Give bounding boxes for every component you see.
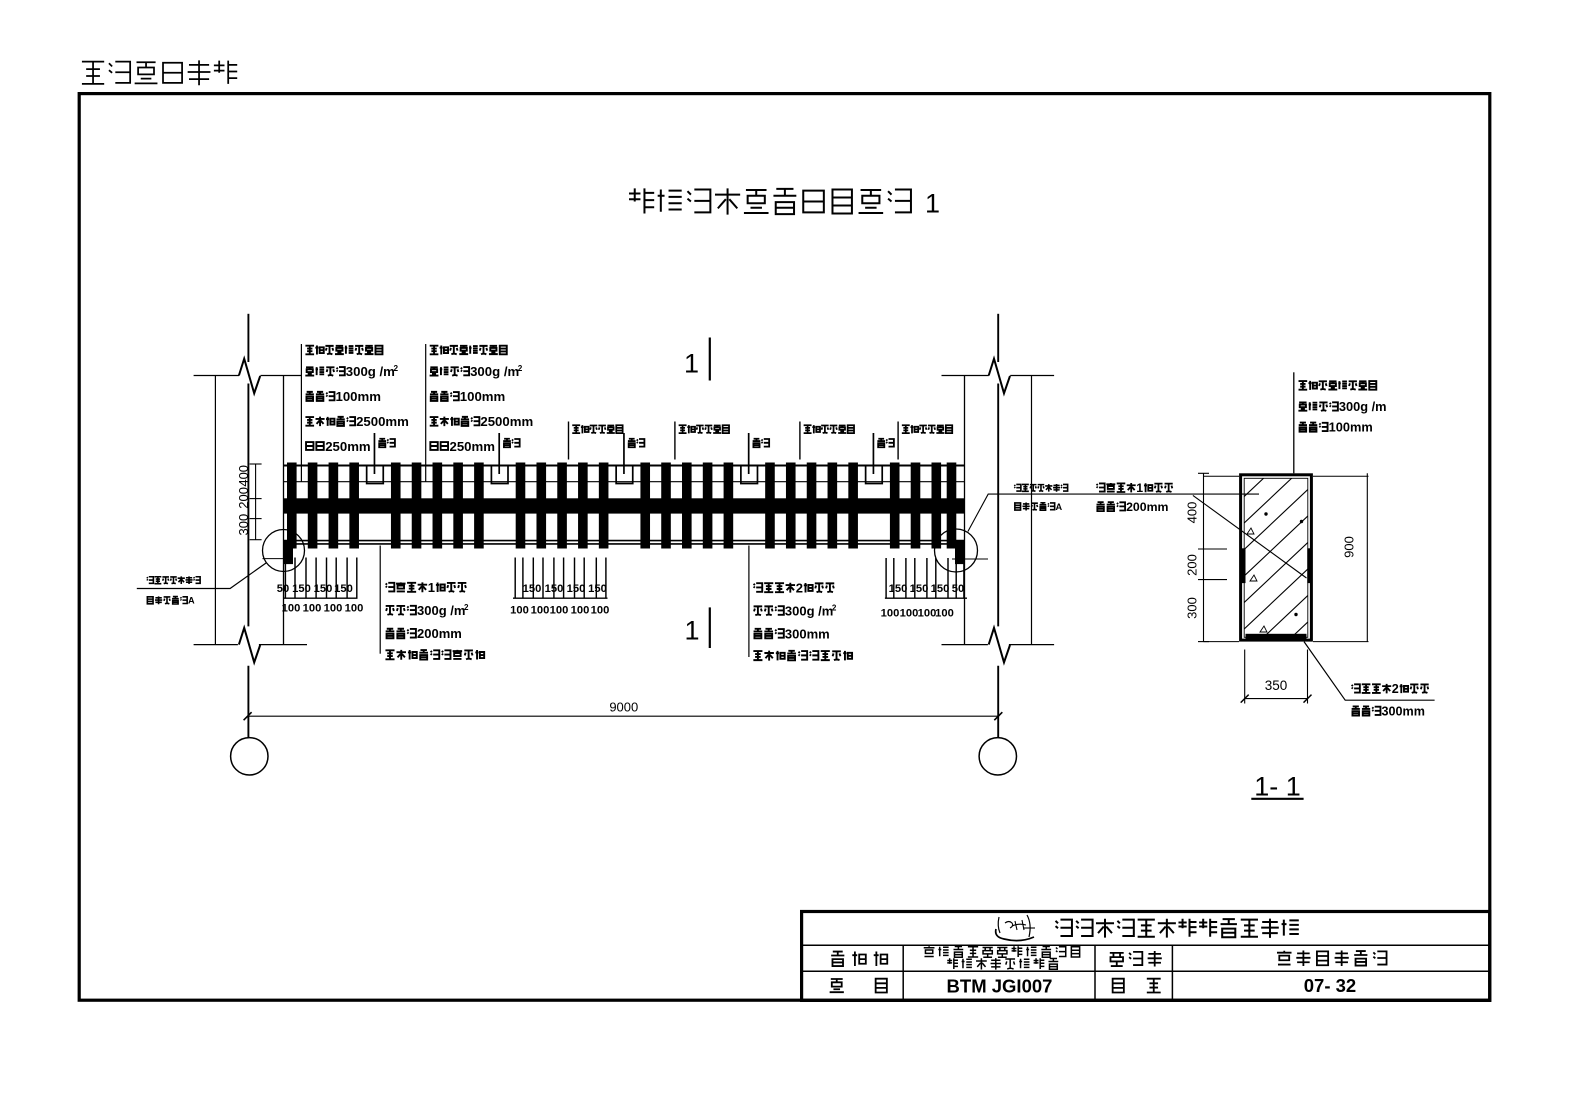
svg-text:1: 1 (684, 349, 699, 379)
svg-text:150: 150 (588, 583, 607, 595)
svg-text:50: 50 (277, 583, 289, 595)
svg-text:100: 100 (531, 605, 550, 617)
svg-text:200mm: 200mm (417, 626, 462, 641)
svg-text:1: 1 (685, 616, 700, 646)
svg-text:400: 400 (236, 465, 251, 487)
svg-text:1: 1 (925, 189, 940, 219)
svg-text:2: 2 (1392, 682, 1399, 696)
svg-text:100: 100 (918, 608, 937, 620)
svg-text:300g /m: 300g /m (1339, 399, 1387, 414)
svg-text:150: 150 (314, 583, 333, 595)
svg-text:150: 150 (292, 583, 311, 595)
svg-text:100: 100 (571, 605, 590, 617)
svg-text:150: 150 (523, 583, 542, 595)
svg-text:250mm: 250mm (325, 439, 370, 454)
svg-text:200mm: 200mm (1126, 500, 1168, 514)
svg-text:100mm: 100mm (1329, 420, 1373, 435)
svg-text:300g /m: 300g /m (417, 603, 465, 618)
svg-text:100: 100 (935, 608, 954, 620)
svg-text:100: 100 (900, 608, 919, 620)
svg-text:300g /m: 300g /m (470, 364, 519, 379)
svg-text:100: 100 (881, 608, 900, 620)
svg-text:2500mm: 2500mm (356, 414, 409, 429)
svg-text:300: 300 (1185, 597, 1200, 619)
svg-text:100: 100 (510, 605, 529, 617)
svg-text:300mm: 300mm (1382, 705, 1425, 719)
svg-text:150: 150 (567, 583, 586, 595)
svg-text:150: 150 (334, 583, 353, 595)
svg-text:50: 50 (952, 583, 964, 595)
svg-text:100: 100 (345, 603, 364, 615)
svg-text:1: 1 (428, 580, 435, 595)
svg-text:300: 300 (236, 514, 251, 536)
svg-text:1- 1: 1- 1 (1254, 772, 1301, 802)
svg-text:400: 400 (1185, 502, 1200, 524)
svg-text:300g /m: 300g /m (785, 603, 833, 618)
svg-text:2: 2 (518, 364, 523, 373)
svg-text:150: 150 (545, 583, 564, 595)
svg-text:100: 100 (591, 605, 610, 617)
svg-text:100: 100 (550, 605, 569, 617)
svg-text:1: 1 (1136, 481, 1143, 495)
svg-text:100: 100 (324, 603, 343, 615)
svg-text:2500mm: 2500mm (480, 414, 533, 429)
svg-text:A: A (1056, 502, 1063, 512)
svg-text:100: 100 (282, 603, 301, 615)
svg-text:A: A (188, 596, 195, 606)
svg-text:07- 32: 07- 32 (1304, 975, 1356, 996)
svg-text:100: 100 (303, 603, 322, 615)
svg-text:150: 150 (910, 583, 929, 595)
svg-text:2: 2 (393, 364, 398, 373)
svg-text:BTM JGI007: BTM JGI007 (947, 975, 1053, 996)
svg-text:2: 2 (832, 603, 837, 612)
svg-text:350: 350 (1265, 678, 1288, 693)
svg-text:900: 900 (1341, 536, 1356, 558)
svg-text:200: 200 (236, 487, 251, 509)
svg-text:2: 2 (796, 580, 803, 595)
svg-text:300g /m: 300g /m (346, 364, 395, 379)
svg-text:9000: 9000 (609, 700, 638, 715)
svg-text:100mm: 100mm (336, 389, 381, 404)
svg-text:150: 150 (931, 583, 950, 595)
svg-text:100mm: 100mm (460, 389, 505, 404)
svg-text:150: 150 (889, 583, 908, 595)
svg-text:300mm: 300mm (785, 626, 830, 641)
svg-text:2: 2 (464, 603, 469, 612)
svg-text:250mm: 250mm (450, 439, 495, 454)
svg-text:200: 200 (1185, 554, 1200, 576)
